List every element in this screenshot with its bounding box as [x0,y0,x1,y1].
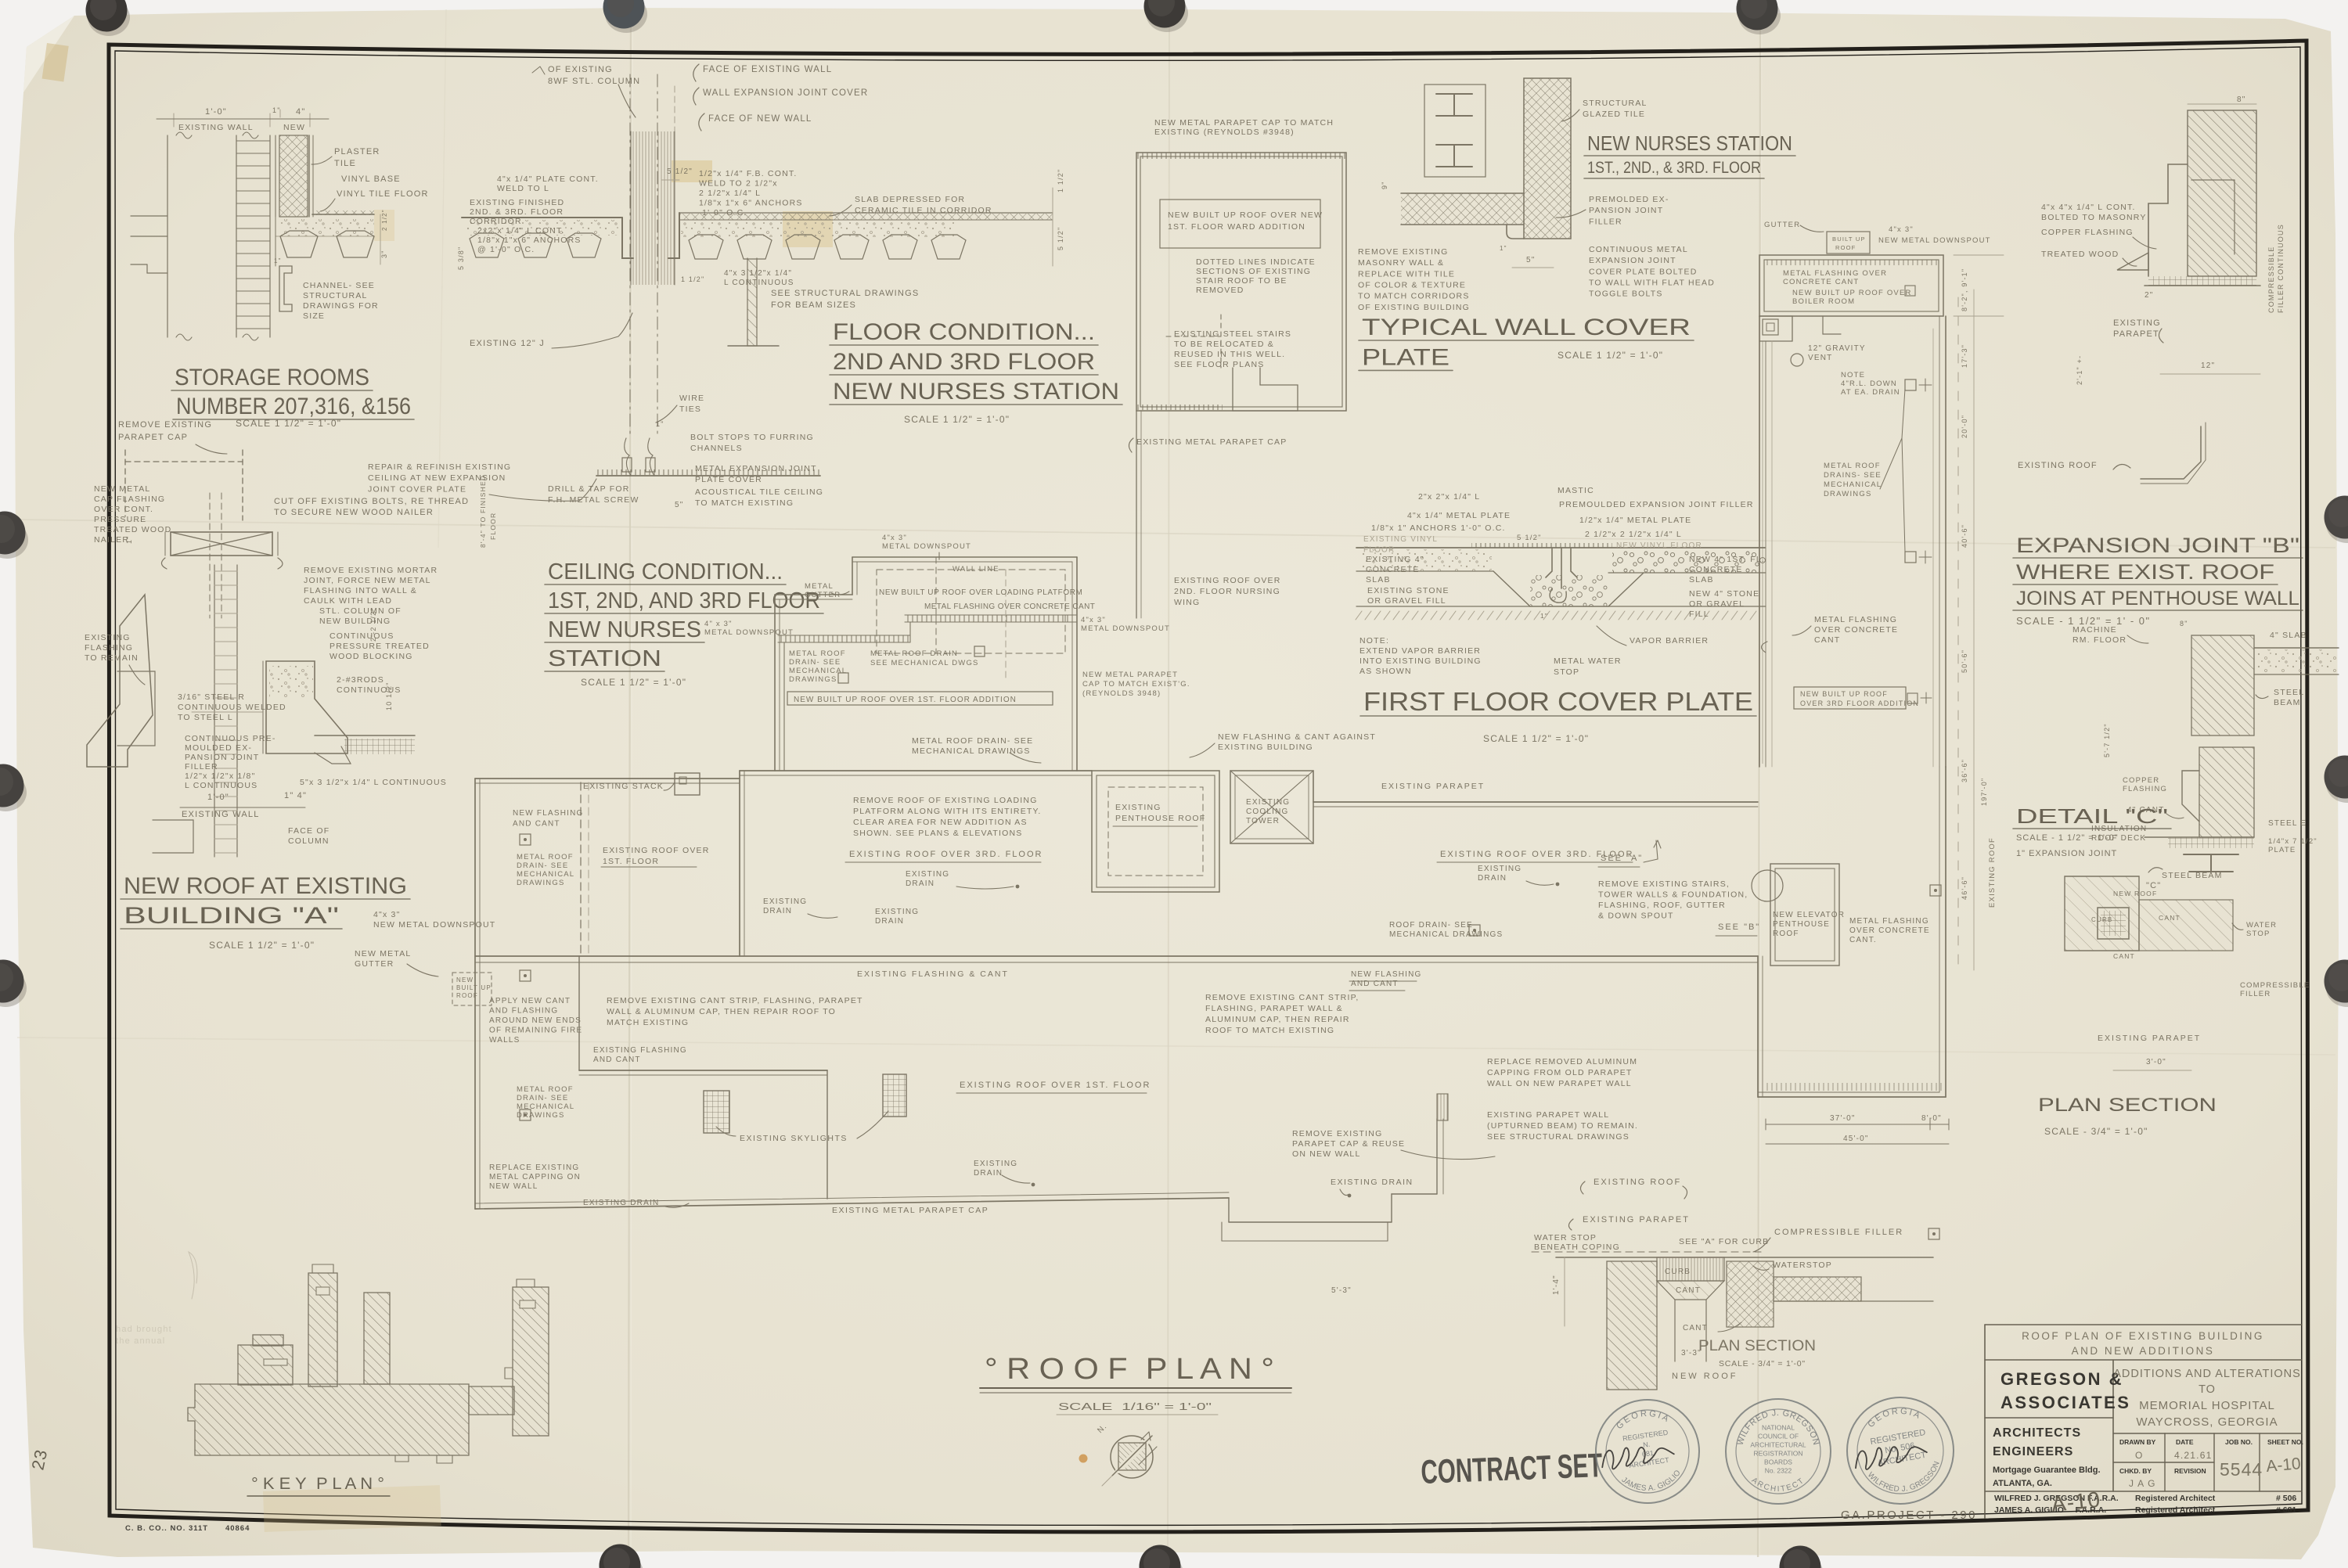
svg-text:WALL EXPANSION JOINT COVER: WALL EXPANSION JOINT COVER [703,88,868,98]
svg-text:1 1/2": 1 1/2" [1057,169,1064,192]
svg-text:2ND AND 3RD FLOOR: 2ND AND 3RD FLOOR [833,349,1095,375]
svg-text:EXISTING PARAPET: EXISTING PARAPET [1381,782,1485,791]
svg-text:EXISTING ROOF OVER 3RD. FLOOR: EXISTING ROOF OVER 3RD. FLOOR [849,850,1043,859]
svg-text:NUMBER 207,316, &156: NUMBER 207,316, &156 [176,394,411,419]
svg-text:SEE "A": SEE "A" [1601,854,1643,863]
svg-text:NEW ROOF: NEW ROOF [1672,1372,1738,1381]
svg-text:° K E Y P L A N °: ° K E Y P L A N ° [251,1475,384,1493]
svg-text:METAL ROOF DRAIN- SEEMECHANICA: METAL ROOF DRAIN- SEEMECHANICAL DRAWINGS [912,736,1033,756]
svg-text:DRAWN BY: DRAWN BY [2119,1438,2156,1446]
svg-text:NATIONAL: NATIONAL [1762,1423,1795,1431]
svg-text:SCALE 1 1/2" = 1'-0": SCALE 1 1/2" = 1'-0" [209,940,315,951]
svg-text:EXISTING DRAIN: EXISTING DRAIN [583,1199,659,1207]
svg-text:GA.PROJECT - 290: GA.PROJECT - 290 [1841,1509,1977,1522]
svg-text:EXISTING WALL: EXISTING WALL [178,123,254,132]
svg-text:NEW BUILT UP ROOF OVER 1ST. FL: NEW BUILT UP ROOF OVER 1ST. FLOOR ADDITI… [794,696,1017,704]
svg-text:NEW ROOF AT EXISTING: NEW ROOF AT EXISTING [124,873,407,899]
svg-text:NEW NURSES: NEW NURSES [548,617,701,642]
svg-text:VAPOR BARRIER: VAPOR BARRIER [1630,636,1709,646]
svg-text:4" SLAB: 4" SLAB [2270,631,2307,640]
svg-text:REMOVE EXISTING: REMOVE EXISTING [118,420,212,430]
svg-text:FACE OF EXISTING WALL: FACE OF EXISTING WALL [703,65,832,74]
svg-text:TREATED WOOD: TREATED WOOD [2041,250,2119,259]
svg-text:Registered Architect: Registered Architect [2135,1505,2216,1515]
svg-text:REVISION: REVISION [2174,1467,2206,1475]
svg-text:10 1/2": 10 1/2" [385,682,393,710]
svg-text:PLAN SECTION: PLAN SECTION [1698,1338,1816,1354]
svg-text:2"x 2"x 1/4" L: 2"x 2"x 1/4" L [1418,492,1480,502]
svg-text:8'-4" TO FINISHED: 8'-4" TO FINISHED [479,475,487,548]
svg-text:SCALE - 1 1/2" = 1'-0": SCALE - 1 1/2" = 1'-0" [2016,833,2119,843]
svg-text:20'-0": 20'-0" [1961,415,1968,438]
svg-text:JOINS AT PENTHOUSE WALL: JOINS AT PENTHOUSE WALL [2016,588,2299,610]
svg-text:JOB NO.: JOB NO. [2225,1438,2253,1446]
svg-text:STL. COLUMN OFNEW BUILDING: STL. COLUMN OFNEW BUILDING [319,606,402,626]
svg-text:SCALE 1 1/2" = 1'-0": SCALE 1 1/2" = 1'-0" [1558,350,1663,361]
svg-text:METAL FLASHING OVER CONCRETE C: METAL FLASHING OVER CONCRETE CANT [924,602,1095,611]
svg-text:REPLACE REMOVED ALUMINUMCAPPIN: REPLACE REMOVED ALUMINUMCAPPING FROM OLD… [1487,1057,1637,1088]
svg-text:17'-3": 17'-3" [1961,344,1968,368]
svg-text:TO: TO [2199,1383,2216,1396]
svg-text:4"x 1/4" METAL PLATE: 4"x 1/4" METAL PLATE [1407,511,1511,520]
svg-text:STEEL E: STEEL E [2268,819,2307,828]
svg-text:# 681: # 681 [2276,1505,2296,1515]
svg-text:SCALE - 3/4" = 1'-0": SCALE - 3/4" = 1'-0" [1719,1359,1806,1368]
svg-text:2": 2" [2145,291,2154,300]
svg-text:EXISTING PARAPET: EXISTING PARAPET [2098,1034,2201,1043]
svg-text:BOARDS: BOARDS [1764,1458,1792,1466]
svg-text:5 1/2": 5 1/2" [667,167,693,176]
svg-text:CANT: CANT [2113,952,2135,960]
svg-text:FLOOR: FLOOR [489,512,497,540]
svg-text:COPPER FLASHING: COPPER FLASHING [2041,228,2134,237]
svg-text:TYPICAL WALL COVER: TYPICAL WALL COVER [1362,315,1691,340]
svg-text:NEW ROOF: NEW ROOF [2113,890,2157,897]
svg-text:3'-0": 3'-0" [2146,1058,2166,1066]
svg-text:EXISTING DRAIN: EXISTING DRAIN [1331,1178,1413,1187]
svg-text:CONTRACT SET: CONTRACT SET [1421,1447,1604,1491]
svg-text:12": 12" [2201,361,2215,370]
svg-text:Registered Architect: Registered Architect [2135,1494,2216,1503]
svg-text:PREMOULDED EXPANSION JOINT FIL: PREMOULDED EXPANSION JOINT FILLER [1559,500,1754,509]
svg-text:COMPRESSIBLE FILLER: COMPRESSIBLE FILLER [1774,1228,1903,1237]
svg-text:37'-0": 37'-0" [1830,1114,1856,1123]
svg-text:SCALE - 3/4" = 1'-0": SCALE - 3/4" = 1'-0" [2044,1126,2148,1137]
svg-text:DETAIL "C": DETAIL "C" [2016,804,2168,828]
svg-text:N.: N. [1643,1440,1651,1449]
svg-text:3": 3" [380,250,388,258]
svg-text:SHEET NO.: SHEET NO. [2267,1438,2303,1446]
svg-text:O: O [2135,1450,2144,1461]
svg-text:1ST., 2ND., & 3RD. FLOOR: 1ST., 2ND., & 3RD. FLOOR [1587,159,1761,177]
svg-text:ROOF PLAN OF EXISTING BUIL: ROOF PLAN OF EXISTING BUILDING [2022,1330,2264,1342]
svg-text:WAYCROSS, GEORGIA: WAYCROSS, GEORGIA [2136,1415,2278,1429]
svg-text:4"x 4"x 1/4" L CONT.BOLTED TO: 4"x 4"x 1/4" L CONT.BOLTED TO MASONRY [2041,203,2147,222]
svg-text:ARCHITECTS: ARCHITECTS [1993,1426,2081,1440]
svg-text:SCALE 1 1/2" = 1'-0": SCALE 1 1/2" = 1'-0" [581,677,686,688]
svg-text:EXISTING ROOF OVER 1ST. FLOOR: EXISTING ROOF OVER 1ST. FLOOR [960,1081,1151,1090]
svg-text:AND NEW ADDITIONS: AND NEW ADDITIONS [2072,1345,2215,1357]
svg-text:C. B. CO.. NO. 311T 40864: C. B. CO.. NO. 311T 40864 [125,1524,250,1533]
svg-text:CANT: CANT [1683,1324,1708,1332]
svg-text:1'-0": 1'-0" [207,793,229,802]
svg-text:# 506: # 506 [2276,1494,2296,1503]
svg-text:WATERSTOP: WATERSTOP [1773,1261,1832,1270]
svg-text:FACE OF NEW WALL: FACE OF NEW WALL [708,114,812,124]
svg-text:SCALE 1 1/2" = 1'-0": SCALE 1 1/2" = 1'-0" [904,414,1010,425]
svg-text:MASTIC: MASTIC [1558,486,1594,495]
svg-text:ADDITIONS AND ALTERATIONS: ADDITIONS AND ALTERATIONS [2113,1368,2301,1380]
svg-text:EXISTING STONEOR GRAVEL FILL: EXISTING STONEOR GRAVEL FILL [1367,586,1449,606]
svg-text:5 1/2": 5 1/2" [1517,534,1542,542]
svg-text:NEW: NEW [283,123,305,132]
svg-text:EXISTING WALL: EXISTING WALL [182,810,260,819]
svg-text:1": 1" [1540,612,1548,620]
svg-text:8'-0": 8'-0" [1921,1114,1942,1123]
svg-text:EXISTING ROOF: EXISTING ROOF [1594,1178,1681,1187]
svg-text:EXISTING METAL PARAPET CAP: EXISTING METAL PARAPET CAP [1136,437,1287,447]
svg-text:ATLANTA, GA.: ATLANTA, GA. [1993,1479,2052,1488]
svg-text:GUTTER: GUTTER [1764,221,1800,229]
svg-text:4.21.61: 4.21.61 [2174,1450,2212,1461]
svg-text:1/2"x 1/4" METAL PLATE: 1/2"x 1/4" METAL PLATE [1579,516,1691,525]
svg-text:2 1/2": 2 1/2" [381,209,388,231]
svg-text:WALL LINE: WALL LINE [953,565,999,574]
svg-text:NEW VINYL FLOOR: NEW VINYL FLOOR [1616,541,1702,550]
svg-text:° R O O F P L A N °: ° R O O F P L A N ° [985,1353,1274,1386]
svg-text:SEE "B": SEE "B" [1718,922,1760,932]
svg-text:1/8"x 1" ANCHORS 1'-0" O.C.: 1/8"x 1" ANCHORS 1'-0" O.C. [1371,523,1506,533]
svg-text:BUILT UP: BUILT UP [1832,236,1866,243]
svg-text:EXISTING STACK: EXISTING STACK [583,782,664,791]
svg-text:8": 8" [2180,620,2188,628]
svg-text:ROOF: ROOF [1835,244,1856,251]
svg-text:J A G: J A G [2129,1478,2156,1489]
svg-text:4"x 3 1/2"x 1/4"L CONTINUOUS: 4"x 3 1/2"x 1/4"L CONTINUOUS [724,269,794,287]
svg-text:ASSOCIATES: ASSOCIATES [2000,1393,2130,1412]
svg-text:FLOOR CONDITION...: FLOOR CONDITION... [833,319,1095,345]
svg-text:STORAGE ROOMS: STORAGE ROOMS [175,365,369,390]
svg-text:45'-0": 45'-0" [1843,1135,1869,1143]
svg-text:Mortgage Guarantee Bldg.: Mortgage Guarantee Bldg. [1993,1466,2101,1475]
svg-text:36'-6": 36'-6" [1961,759,1968,782]
svg-text:2 1/2"x 2 1/2"x 1/4" L: 2 1/2"x 2 1/2"x 1/4" L [1585,530,1682,539]
svg-text:NEW METAL DOWNSPOUT: NEW METAL DOWNSPOUT [1878,236,1991,245]
svg-text:1'-4": 1'-4" [1552,1275,1561,1295]
svg-text:ENGINEERS: ENGINEERS [1993,1445,2073,1458]
svg-text:9": 9" [1381,181,1388,189]
svg-text:1": 1" [274,257,282,264]
svg-text:46'-6": 46'-6" [1961,876,1968,900]
svg-text:2'-1" +-: 2'-1" +- [2076,355,2083,385]
svg-text:BUILDING "A": BUILDING "A" [124,903,339,929]
svg-text:EXISTING 12" J: EXISTING 12" J [470,339,545,348]
svg-text:1 1/2": 1 1/2" [681,275,704,283]
svg-text:DATE: DATE [2176,1438,2194,1446]
svg-text:EXISTING FLASHING & CANT: EXISTING FLASHING & CANT [857,969,1009,979]
svg-text:EXISTING PARAPET: EXISTING PARAPET [1583,1215,1690,1225]
svg-text:SEE "A" FOR CURB: SEE "A" FOR CURB [1679,1237,1769,1246]
svg-text:MEMORIAL HOSPITAL: MEMORIAL HOSPITAL [2139,1399,2275,1412]
svg-text:SCALE 1/16" = 1'-0": SCALE 1/16" = 1'-0" [1058,1401,1212,1412]
svg-text:VINYL BASE: VINYL BASE [341,174,401,184]
svg-text:8'-2", 9'-1": 8'-2", 9'-1" [1961,268,1968,311]
svg-text:CHKD. BY: CHKD. BY [2119,1467,2152,1475]
svg-text:1'-0": 1'-0" [205,107,227,117]
svg-text:SCALE 1 1/2" = 1'-0": SCALE 1 1/2" = 1'-0" [236,418,341,429]
svg-text:5"x 3 1/2"x 1/4" L CONTINUOUS: 5"x 3 1/2"x 1/4" L CONTINUOUS [300,778,447,787]
svg-text:A-10: A-10 [2050,1487,2101,1516]
svg-text:NEW NURSES STATION: NEW NURSES STATION [1587,131,1792,155]
svg-text:NEW BUILT UP ROOF OVER LOADING: NEW BUILT UP ROOF OVER LOADING PLATFORM [879,588,1082,597]
svg-text:COUNCIL OF: COUNCIL OF [1758,1432,1799,1440]
svg-text:5 1/2": 5 1/2" [1057,227,1064,250]
svg-text:EXISTING METAL PARAPET CAP: EXISTING METAL PARAPET CAP [832,1206,989,1215]
svg-text:WHERE EXIST. ROOF: WHERE EXIST. ROOF [2016,560,2274,584]
svg-text:EXISTING ROOF: EXISTING ROOF [1988,837,1997,908]
svg-text:GREGSON &: GREGSON & [2000,1369,2123,1389]
svg-text:CEILING CONDITION...: CEILING CONDITION... [548,559,783,584]
svg-text:1": 1" [125,535,133,544]
svg-text:CANT: CANT [2159,914,2181,922]
svg-text:No. 2322: No. 2322 [1765,1467,1792,1475]
svg-text:5'-7 1/2": 5'-7 1/2" [2103,723,2111,757]
svg-text:A-10: A-10 [2265,1455,2301,1476]
svg-text:197'-0": 197'-0" [1980,778,1988,806]
svg-text:PLATE: PLATE [1362,344,1449,370]
svg-text:5 3/8": 5 3/8" [457,246,465,270]
svg-text:SCALE 1 1/2" = 1'-0": SCALE 1 1/2" = 1'-0" [1483,733,1589,744]
svg-text:REGISTRATION: REGISTRATION [1753,1450,1802,1458]
svg-text:5544: 5544 [2220,1459,2263,1480]
svg-text:4": 4" [296,107,305,117]
svg-text:STEEL BEAM: STEEL BEAM [2162,871,2223,880]
svg-text:STATION: STATION [548,646,661,671]
svg-text:4"x 3": 4"x 3" [1889,225,1914,234]
svg-text:FACE OFCOLUMN: FACE OFCOLUMN [288,826,330,846]
svg-text:5": 5" [675,501,684,509]
svg-text:CURB: CURB [2091,916,2112,923]
svg-text:50'-6": 50'-6" [1961,649,1968,673]
svg-text:CANT: CANT [1676,1286,1701,1295]
svg-text:PARAPET CAP: PARAPET CAP [118,433,188,442]
svg-text:ARCHITECTURAL: ARCHITECTURAL [1750,1440,1806,1448]
svg-text:8": 8" [2237,95,2246,104]
svg-text:EXISTING ROOF: EXISTING ROOF [2018,461,2098,470]
svg-text:EXISTING SKYLIGHTS: EXISTING SKYLIGHTS [740,1134,848,1143]
svg-text:40'-6": 40'-6" [1961,524,1968,548]
svg-text:1" 4": 1" 4" [284,791,307,800]
svg-text:5": 5" [1526,256,1536,264]
svg-text:CURB: CURB [1665,1268,1691,1276]
svg-text:EXPANSION JOINT "B": EXPANSION JOINT "B" [2016,534,2299,557]
svg-text:1": 1" [272,106,281,114]
svg-text:STEELBEAM: STEELBEAM [2274,688,2304,707]
svg-text:VINYL TILE FLOOR: VINYL TILE FLOOR [337,189,429,199]
svg-text:1": 1" [656,420,664,428]
svg-text:1": 1" [1500,245,1507,252]
svg-text:PLAN SECTION: PLAN SECTION [2038,1095,2217,1116]
svg-text:NEW NURSES STATION: NEW NURSES STATION [833,379,1119,405]
svg-text:5'-3": 5'-3" [1331,1286,1352,1295]
svg-text:FIRST FLOOR COVER PLATE: FIRST FLOOR COVER PLATE [1363,687,1753,716]
svg-text:2'-2 1/2": 2'-2 1/2" [369,607,377,642]
svg-text:1" EXPANSION JOINT: 1" EXPANSION JOINT [2016,849,2117,858]
